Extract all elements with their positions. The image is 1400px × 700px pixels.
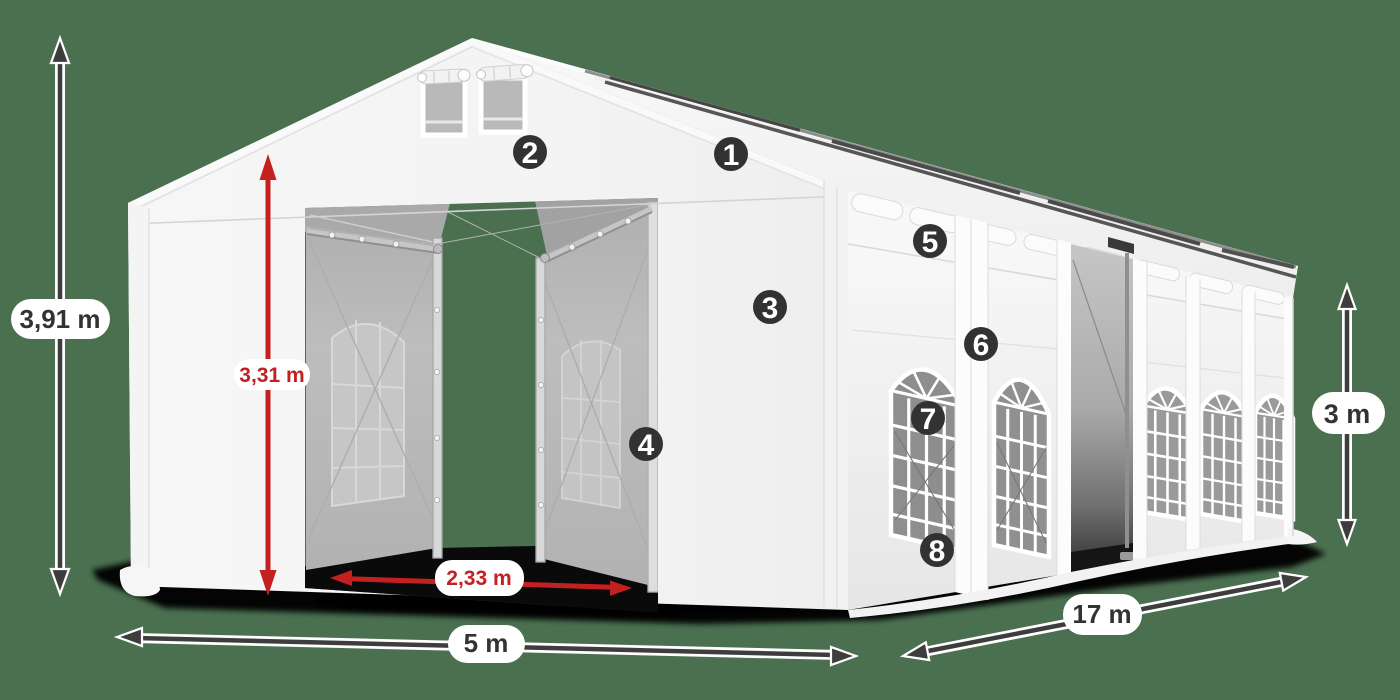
svg-text:7: 7 [920, 403, 937, 436]
svg-text:8: 8 [929, 535, 946, 568]
svg-text:3 m: 3 m [1324, 399, 1371, 429]
svg-text:3,91 m: 3,91 m [20, 304, 101, 334]
svg-text:3: 3 [762, 292, 779, 325]
svg-text:5: 5 [922, 226, 939, 259]
svg-text:3,31 m: 3,31 m [239, 364, 304, 387]
svg-text:2: 2 [522, 137, 539, 170]
svg-text:5 m: 5 m [464, 628, 509, 658]
svg-text:17 m: 17 m [1072, 599, 1131, 629]
svg-text:6: 6 [973, 329, 990, 362]
svg-text:4: 4 [638, 429, 655, 462]
svg-text:1: 1 [723, 139, 740, 172]
svg-text:2,33 m: 2,33 m [446, 567, 511, 590]
